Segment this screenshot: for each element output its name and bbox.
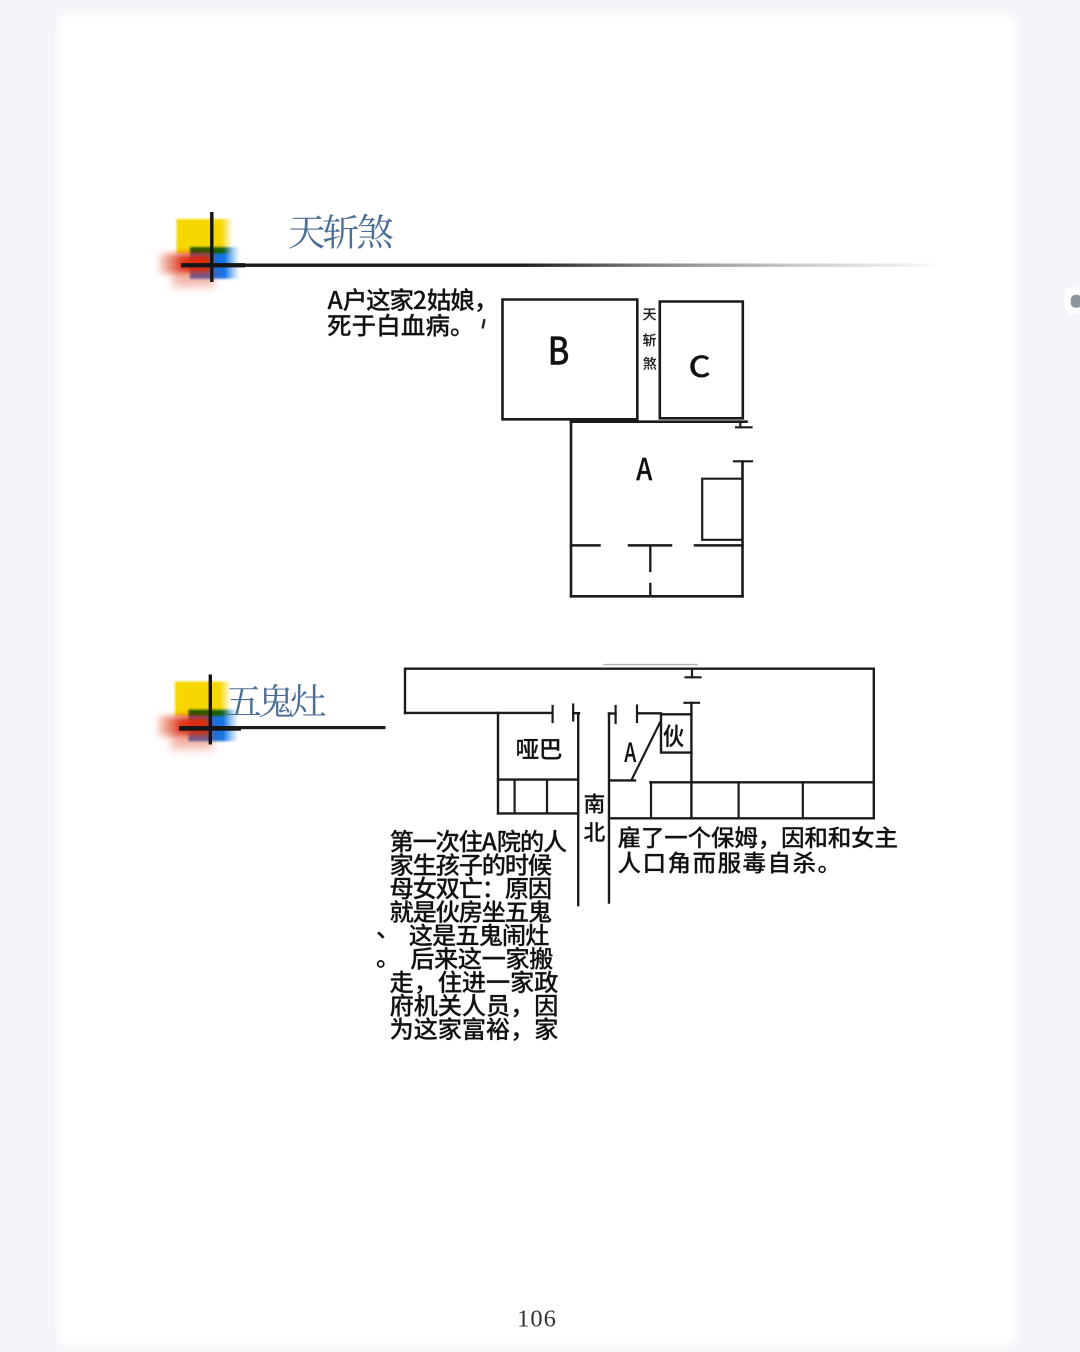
svg-text:106: 106	[517, 1306, 557, 1333]
